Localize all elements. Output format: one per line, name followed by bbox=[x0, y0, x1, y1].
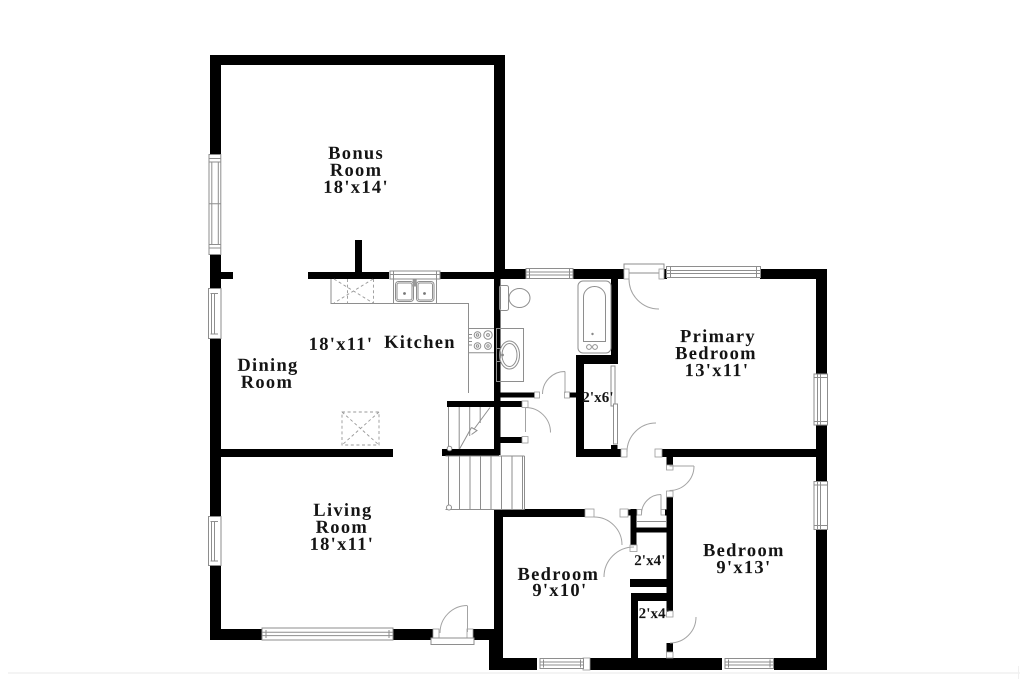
svg-text:18'x11': 18'x11' bbox=[310, 535, 375, 555]
svg-text:18'x14': 18'x14' bbox=[323, 178, 389, 198]
svg-text:9'x13': 9'x13' bbox=[716, 558, 771, 578]
svg-text:2'x4': 2'x4' bbox=[639, 606, 670, 622]
svg-text:18'x11': 18'x11' bbox=[309, 335, 374, 355]
svg-text:13'x11': 13'x11' bbox=[685, 361, 750, 381]
svg-text:Room: Room bbox=[241, 373, 293, 393]
svg-text:2'x6': 2'x6' bbox=[582, 390, 613, 406]
svg-text:Kitchen: Kitchen bbox=[384, 333, 456, 353]
svg-text:9'x10': 9'x10' bbox=[532, 581, 587, 601]
svg-text:2'x4': 2'x4' bbox=[634, 553, 665, 569]
